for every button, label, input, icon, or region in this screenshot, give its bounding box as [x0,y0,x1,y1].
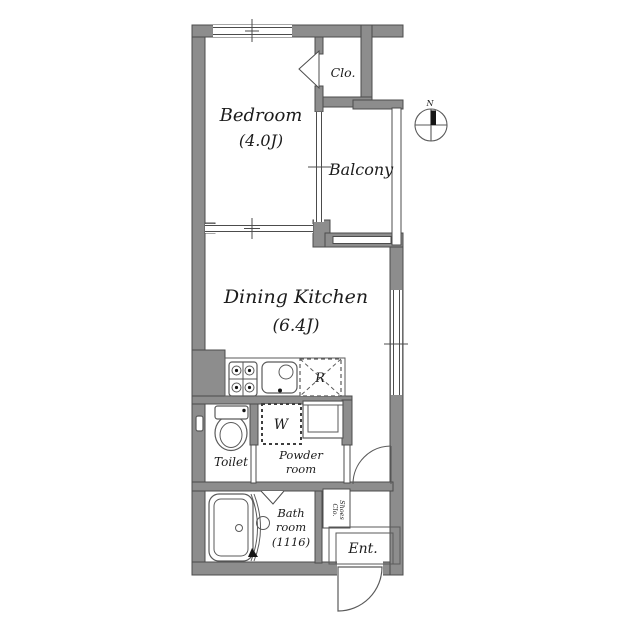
dk-right-window [391,290,402,395]
washing-machine-space: W [262,404,301,444]
toilet-label: Toilet [214,455,248,469]
compass-needle [431,111,437,126]
powder-room-label-1: Powder [278,448,324,462]
bath-room-label-2: room [276,520,306,534]
bedroom-closet-wall-lower [315,86,323,112]
compass-north-label: N [426,99,435,108]
bedroom-size-label: (4.0J) [239,131,283,150]
powder-room-label-2: room [286,462,316,476]
powder-door-panel [344,445,350,483]
entrance-door-swing [338,567,382,611]
bathtub-icon [209,494,253,561]
compass: N [415,99,447,141]
balcony-label: Balcony [328,160,394,179]
bath-room-label-1: Bath [276,506,304,520]
dk-door-swing-arc [353,446,391,484]
closet-door-mark [299,51,319,88]
entrance-label: Ent. [347,541,377,557]
refrigerator-space: R [300,359,341,396]
bath-door-mark [261,491,284,504]
floor-plan: R W N Bedr [0,0,640,640]
floor-plan-drawing: R W N Bedr [0,0,640,640]
stove-icon [229,362,257,396]
sink-icon [262,362,297,393]
bedroom-label: Bedroom [219,105,303,126]
dining-kitchen-label: Dining Kitchen [223,286,368,308]
refrigerator-label: R [314,371,325,386]
bath-room-label-3: (1116) [272,535,310,549]
washbasin-icon [303,401,343,438]
kitchen-pillar-wall [192,350,225,398]
shoes-closet-label-2: Clo. [331,504,339,517]
closet-right-wall [361,25,372,108]
balcony-wall-slot [333,237,391,244]
hall-bottom-wall [192,482,393,491]
outer-wall-left [192,25,205,575]
washing-machine-label: W [274,417,290,433]
dining-kitchen-size-label: (6.4J) [272,316,319,336]
bath-right-wall [315,491,322,563]
balcony-railing [392,108,401,245]
kitchen-counter: R [225,358,345,396]
toilet-powder-divider-wall [250,404,258,445]
bath-faucet-icon [257,517,270,530]
toilet-door-panel [251,445,256,483]
closet-label: Clo. [331,65,356,80]
